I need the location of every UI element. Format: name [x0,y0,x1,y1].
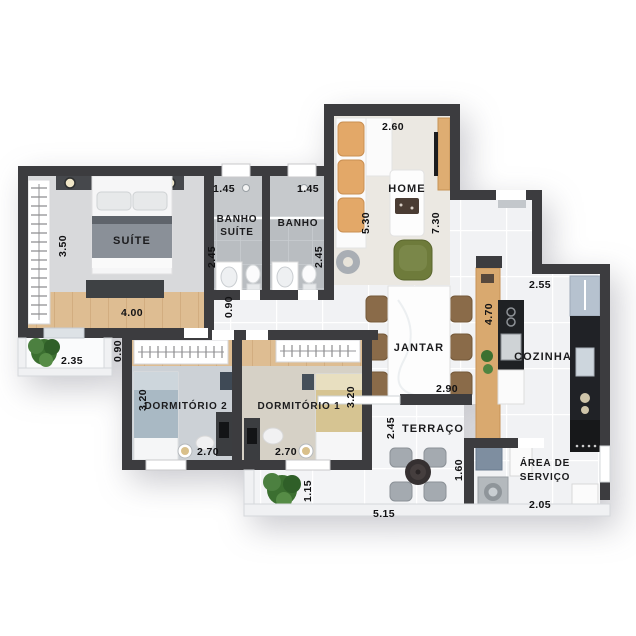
kitchen-wall-counter [570,276,600,452]
terraco-label: TERRAÇO [402,423,464,435]
suite-dim-depth: 3.50 [57,235,69,257]
servico-label-line2: SERVIÇO [520,472,570,483]
banho-suite-dim-depth: 2.45 [206,246,218,268]
suite-dim-width: 4.00 [121,307,143,319]
servico-label-line1: ÁREA DE [520,456,570,469]
cozinha-label: COZINHA [514,351,572,363]
banho-suite-dim-width: 1.45 [213,183,235,195]
counter-dim: 4.70 [483,303,495,325]
dormitorio1-dim-width: 2.70 [275,446,297,458]
terraco-dim-depth: 2.45 [385,417,397,439]
terraco-dim-width: 5.15 [373,508,395,520]
suite-wardrobe [28,180,50,324]
terraco-dim-side: 1.15 [302,480,314,502]
suite-label: SUÍTE [113,234,151,247]
jantar-dim-width: 2.90 [436,383,458,395]
hall-dim-width: 0.90 [223,296,235,318]
home-dim-depth-right: 7.30 [430,212,442,234]
cozinha-dim-width: 2.55 [529,279,551,291]
coffee-table [390,170,424,236]
home-dim-width: 2.60 [382,121,404,133]
banho-suite-label-line1: BANHO [217,214,258,225]
banho-suite-label-line2: SUÍTE [220,225,253,238]
varanda-dim-width: 2.35 [61,355,83,367]
dormitorio2-dim-width: 2.70 [197,446,219,458]
armchair [394,240,432,280]
terraco-dim-depth-right: 1.60 [453,459,465,481]
home-dim-depth-left: 5.30 [360,212,372,234]
floor-plan-page: SUÍTE 3.50 4.00 2.35 0.90 BANHO SUÍTE 1.… [0,0,636,636]
dormitorio1-dim-depth: 3.20 [345,386,357,408]
dormitorio1-label: DORMITÓRIO 1 [258,399,341,412]
varanda-dim-depth: 0.90 [112,340,124,362]
home-label: HOME [388,183,425,195]
banho-dim-width: 1.45 [297,183,319,195]
banho-dim-depth: 2.45 [313,246,325,268]
jantar-label: JANTAR [394,342,444,354]
banho-label: BANHO [278,218,319,229]
dormitorio2-dim-depth: 3.20 [137,389,149,411]
dormitorio2-label: DORMITÓRIO 2 [145,399,228,412]
servico-dim-width: 2.05 [529,499,551,511]
floor-plan: SUÍTE 3.50 4.00 2.35 0.90 BANHO SUÍTE 1.… [0,0,636,636]
